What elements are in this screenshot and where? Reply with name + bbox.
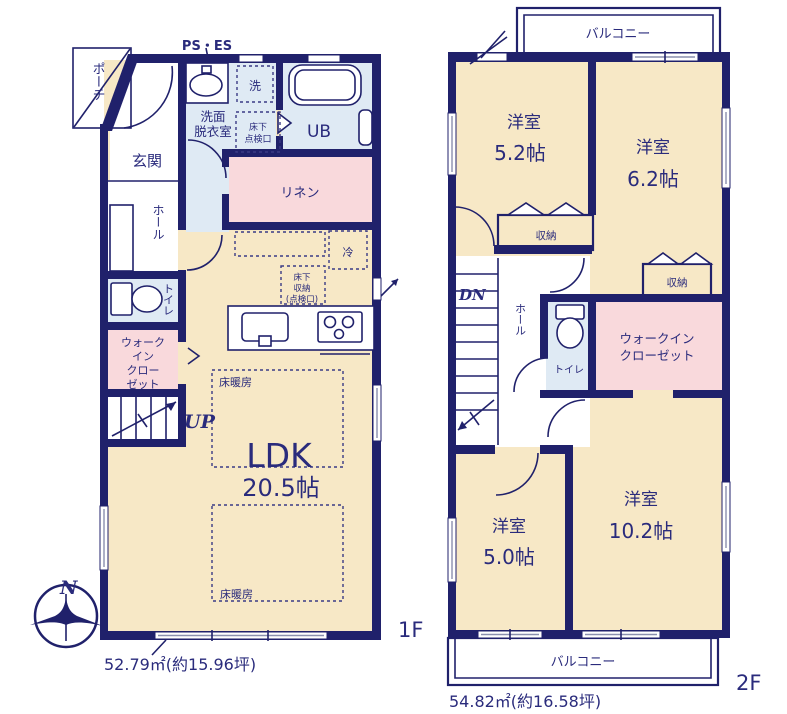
svg-text:点検口: 点検口 xyxy=(244,133,271,145)
toilet-tank-2f xyxy=(556,305,584,319)
balcony-top-label: バルコニー xyxy=(586,27,651,42)
storage2-label: 収納 xyxy=(667,276,688,289)
floor1-plan: ポーチ xyxy=(73,39,423,674)
floorplan-page: ポーチ xyxy=(0,0,787,714)
up-label: UP xyxy=(184,411,216,433)
kitchen-faucet-icon xyxy=(259,336,271,346)
compass-needle-icon xyxy=(30,598,103,626)
underfloor-label: 床下 xyxy=(293,272,311,283)
genkan-label: 玄関 xyxy=(132,152,162,170)
hall-room-1f xyxy=(106,180,178,272)
wic-room-2f xyxy=(596,302,722,390)
toilet-bowl-1f xyxy=(132,286,162,312)
ps-es-label: PS・ES xyxy=(182,39,232,54)
hall-label-1f: ホール xyxy=(151,204,165,240)
fridge-label: 冷 xyxy=(343,246,354,259)
hall-stairs-2f xyxy=(452,256,548,447)
ldk-label: LDK xyxy=(246,436,313,475)
balcony-bottom-label: バルコニー xyxy=(551,655,616,670)
svg-text:脱衣室: 脱衣室 xyxy=(194,124,232,139)
inspection-label-1f: 床下 xyxy=(249,121,267,133)
svg-text:(点検口): (点検口) xyxy=(286,294,318,305)
floor2-area: 54.82㎡(約16.58坪) xyxy=(449,692,601,711)
wic-label-2f: ウォークイン xyxy=(619,331,694,346)
floor2-plan: バルコニー バルコニー xyxy=(448,8,761,711)
floor1-label: 1F xyxy=(398,618,423,642)
svg-text:イン: イン xyxy=(132,350,154,363)
floor-heating-label-1: 床暖房 xyxy=(219,375,252,389)
dn-label: DN xyxy=(458,286,487,304)
floor2-label: 2F xyxy=(736,671,761,695)
floor1-area: 52.79㎡(約15.96坪) xyxy=(104,655,256,674)
room62-size: 6.2帖 xyxy=(627,167,679,191)
wic-label-1f: ウォーク xyxy=(121,336,165,349)
stove-icon xyxy=(318,312,362,342)
toilet-bowl-2f xyxy=(557,318,583,348)
svg-text:クロー: クロー xyxy=(127,364,160,377)
storage1-label: 収納 xyxy=(536,229,557,242)
room50-size: 5.0帖 xyxy=(483,545,535,569)
bath-counter xyxy=(359,110,372,145)
toilet-fixture-2f xyxy=(556,305,584,348)
room62-label: 洋室 xyxy=(636,138,670,158)
washroom-label: 洗面 xyxy=(200,109,225,124)
room52-label: 洋室 xyxy=(507,113,541,133)
room102-label: 洋室 xyxy=(624,490,658,510)
laundry-label: 洗 xyxy=(249,79,261,93)
compass-north-label: N xyxy=(59,577,78,599)
room52-size: 5.2帖 xyxy=(494,141,546,165)
svg-text:クローゼット: クローゼット xyxy=(619,348,694,363)
floorplan-drawing: ポーチ xyxy=(0,0,787,714)
balcony-top: バルコニー xyxy=(517,8,720,56)
linen-label: リネン xyxy=(280,186,319,201)
compass: N xyxy=(30,577,103,647)
ldk-size-label: 20.5帖 xyxy=(242,474,319,502)
toilet-label-2f: トイレ xyxy=(554,365,584,376)
svg-text:収納: 収納 xyxy=(293,283,310,294)
toilet-label-1f: トイレ xyxy=(162,283,175,316)
room50-label: 洋室 xyxy=(492,517,526,537)
svg-text:ゼット: ゼット xyxy=(127,378,160,391)
balcony-bottom: バルコニー xyxy=(448,638,718,685)
unit-bath-label: UB xyxy=(307,122,331,142)
room102-size: 10.2帖 xyxy=(609,519,674,543)
toilet-tank-1f xyxy=(111,283,132,315)
washbasin-icon xyxy=(190,74,222,96)
porch-label: ポーチ xyxy=(90,62,105,101)
floor-heating-label-2: 床暖房 xyxy=(220,587,253,601)
hall-label-2f: ホール xyxy=(514,303,527,336)
